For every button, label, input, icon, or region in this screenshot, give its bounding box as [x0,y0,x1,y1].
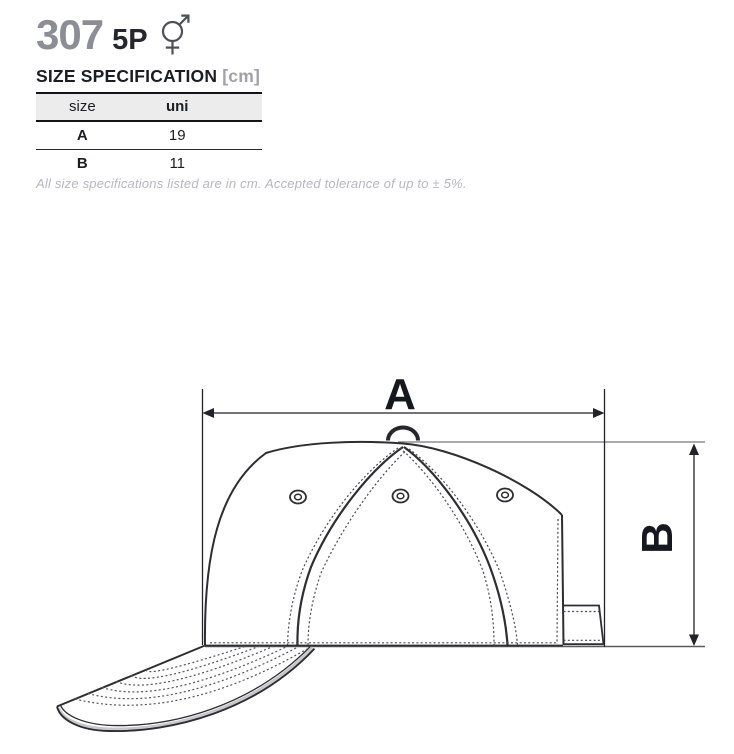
eyelet [397,493,404,499]
tolerance-note: All size specifications listed are in cm… [36,176,596,191]
row-a-value: 19 [129,121,226,150]
row-b-value: 11 [129,150,226,178]
product-code: 5P [112,26,147,55]
size-table: size uni A 19 B 11 [36,92,262,177]
size-spec-page: 307 5P SIZE SPECIFICATION [cm] size uni [0,0,734,749]
column-header-empty [226,93,262,121]
row-a-label: A [36,121,129,150]
table-row: B 11 [36,150,262,178]
row-b-label: B [36,150,129,178]
table-row: A 19 [36,121,262,150]
size-table-header-row: size uni [36,93,262,121]
eyelets [290,489,513,504]
back-strap [563,606,604,645]
dimension-a-label: A [384,370,416,419]
eyelet [393,490,409,503]
cap-technical-drawing: A B [0,370,734,749]
male-female-icon [159,11,192,61]
cap-button [388,428,418,441]
unit-suffix: [cm] [222,66,260,86]
cap-crown-outline [205,442,564,646]
cap-drawing-svg: A B [0,370,734,749]
column-header-uni: uni [129,93,226,121]
section-heading-text: SIZE SPECIFICATION [36,66,217,86]
eyelet [497,489,513,502]
eyelet [502,492,509,498]
product-title: 307 5P [36,4,192,56]
back-panel-seam [400,447,518,645]
column-header-size: size [36,93,129,121]
eyelet [295,494,302,500]
product-number: 307 [36,14,103,56]
visor-stitching [75,646,307,705]
eyelet [290,491,306,504]
section-heading: SIZE SPECIFICATION [cm] [36,66,260,87]
dimension-b-label: B [633,522,682,554]
front-panel-seam [288,447,409,645]
